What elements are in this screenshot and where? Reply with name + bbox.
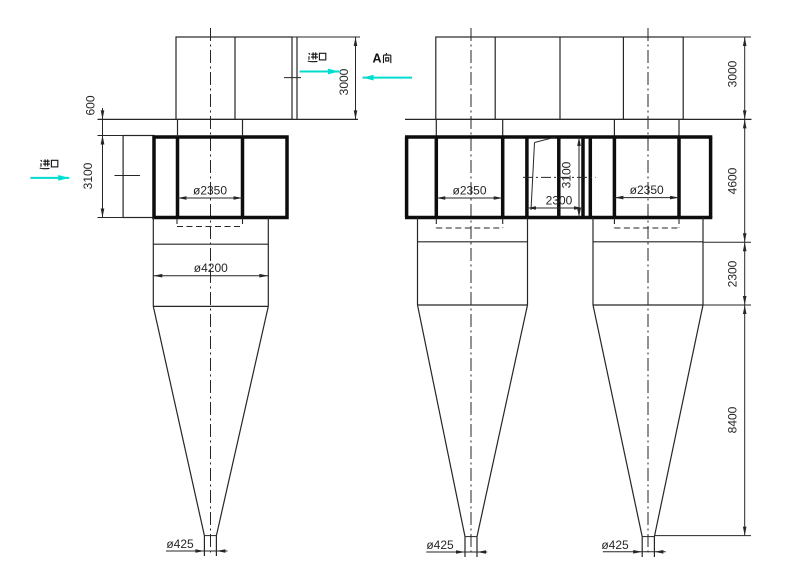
svg-text:3000: 3000 (726, 60, 740, 87)
svg-text:8400: 8400 (726, 406, 740, 433)
svg-text:ø425: ø425 (601, 538, 629, 552)
svg-text:3000: 3000 (337, 68, 351, 95)
svg-text:2300: 2300 (546, 194, 573, 208)
svg-text:ø2350: ø2350 (193, 184, 227, 198)
svg-text:ø2350: ø2350 (452, 184, 486, 198)
svg-text:3100: 3100 (81, 162, 95, 189)
svg-text:A: A (372, 52, 381, 66)
svg-text:ø425: ø425 (166, 537, 194, 551)
svg-text:ø4200: ø4200 (194, 261, 228, 275)
svg-text:4600: 4600 (726, 167, 740, 194)
svg-text:ø425: ø425 (426, 538, 454, 552)
svg-text:2300: 2300 (726, 260, 740, 287)
svg-text:ø2350: ø2350 (630, 183, 664, 197)
svg-text:3100: 3100 (560, 161, 574, 188)
svg-text:600: 600 (84, 95, 98, 115)
